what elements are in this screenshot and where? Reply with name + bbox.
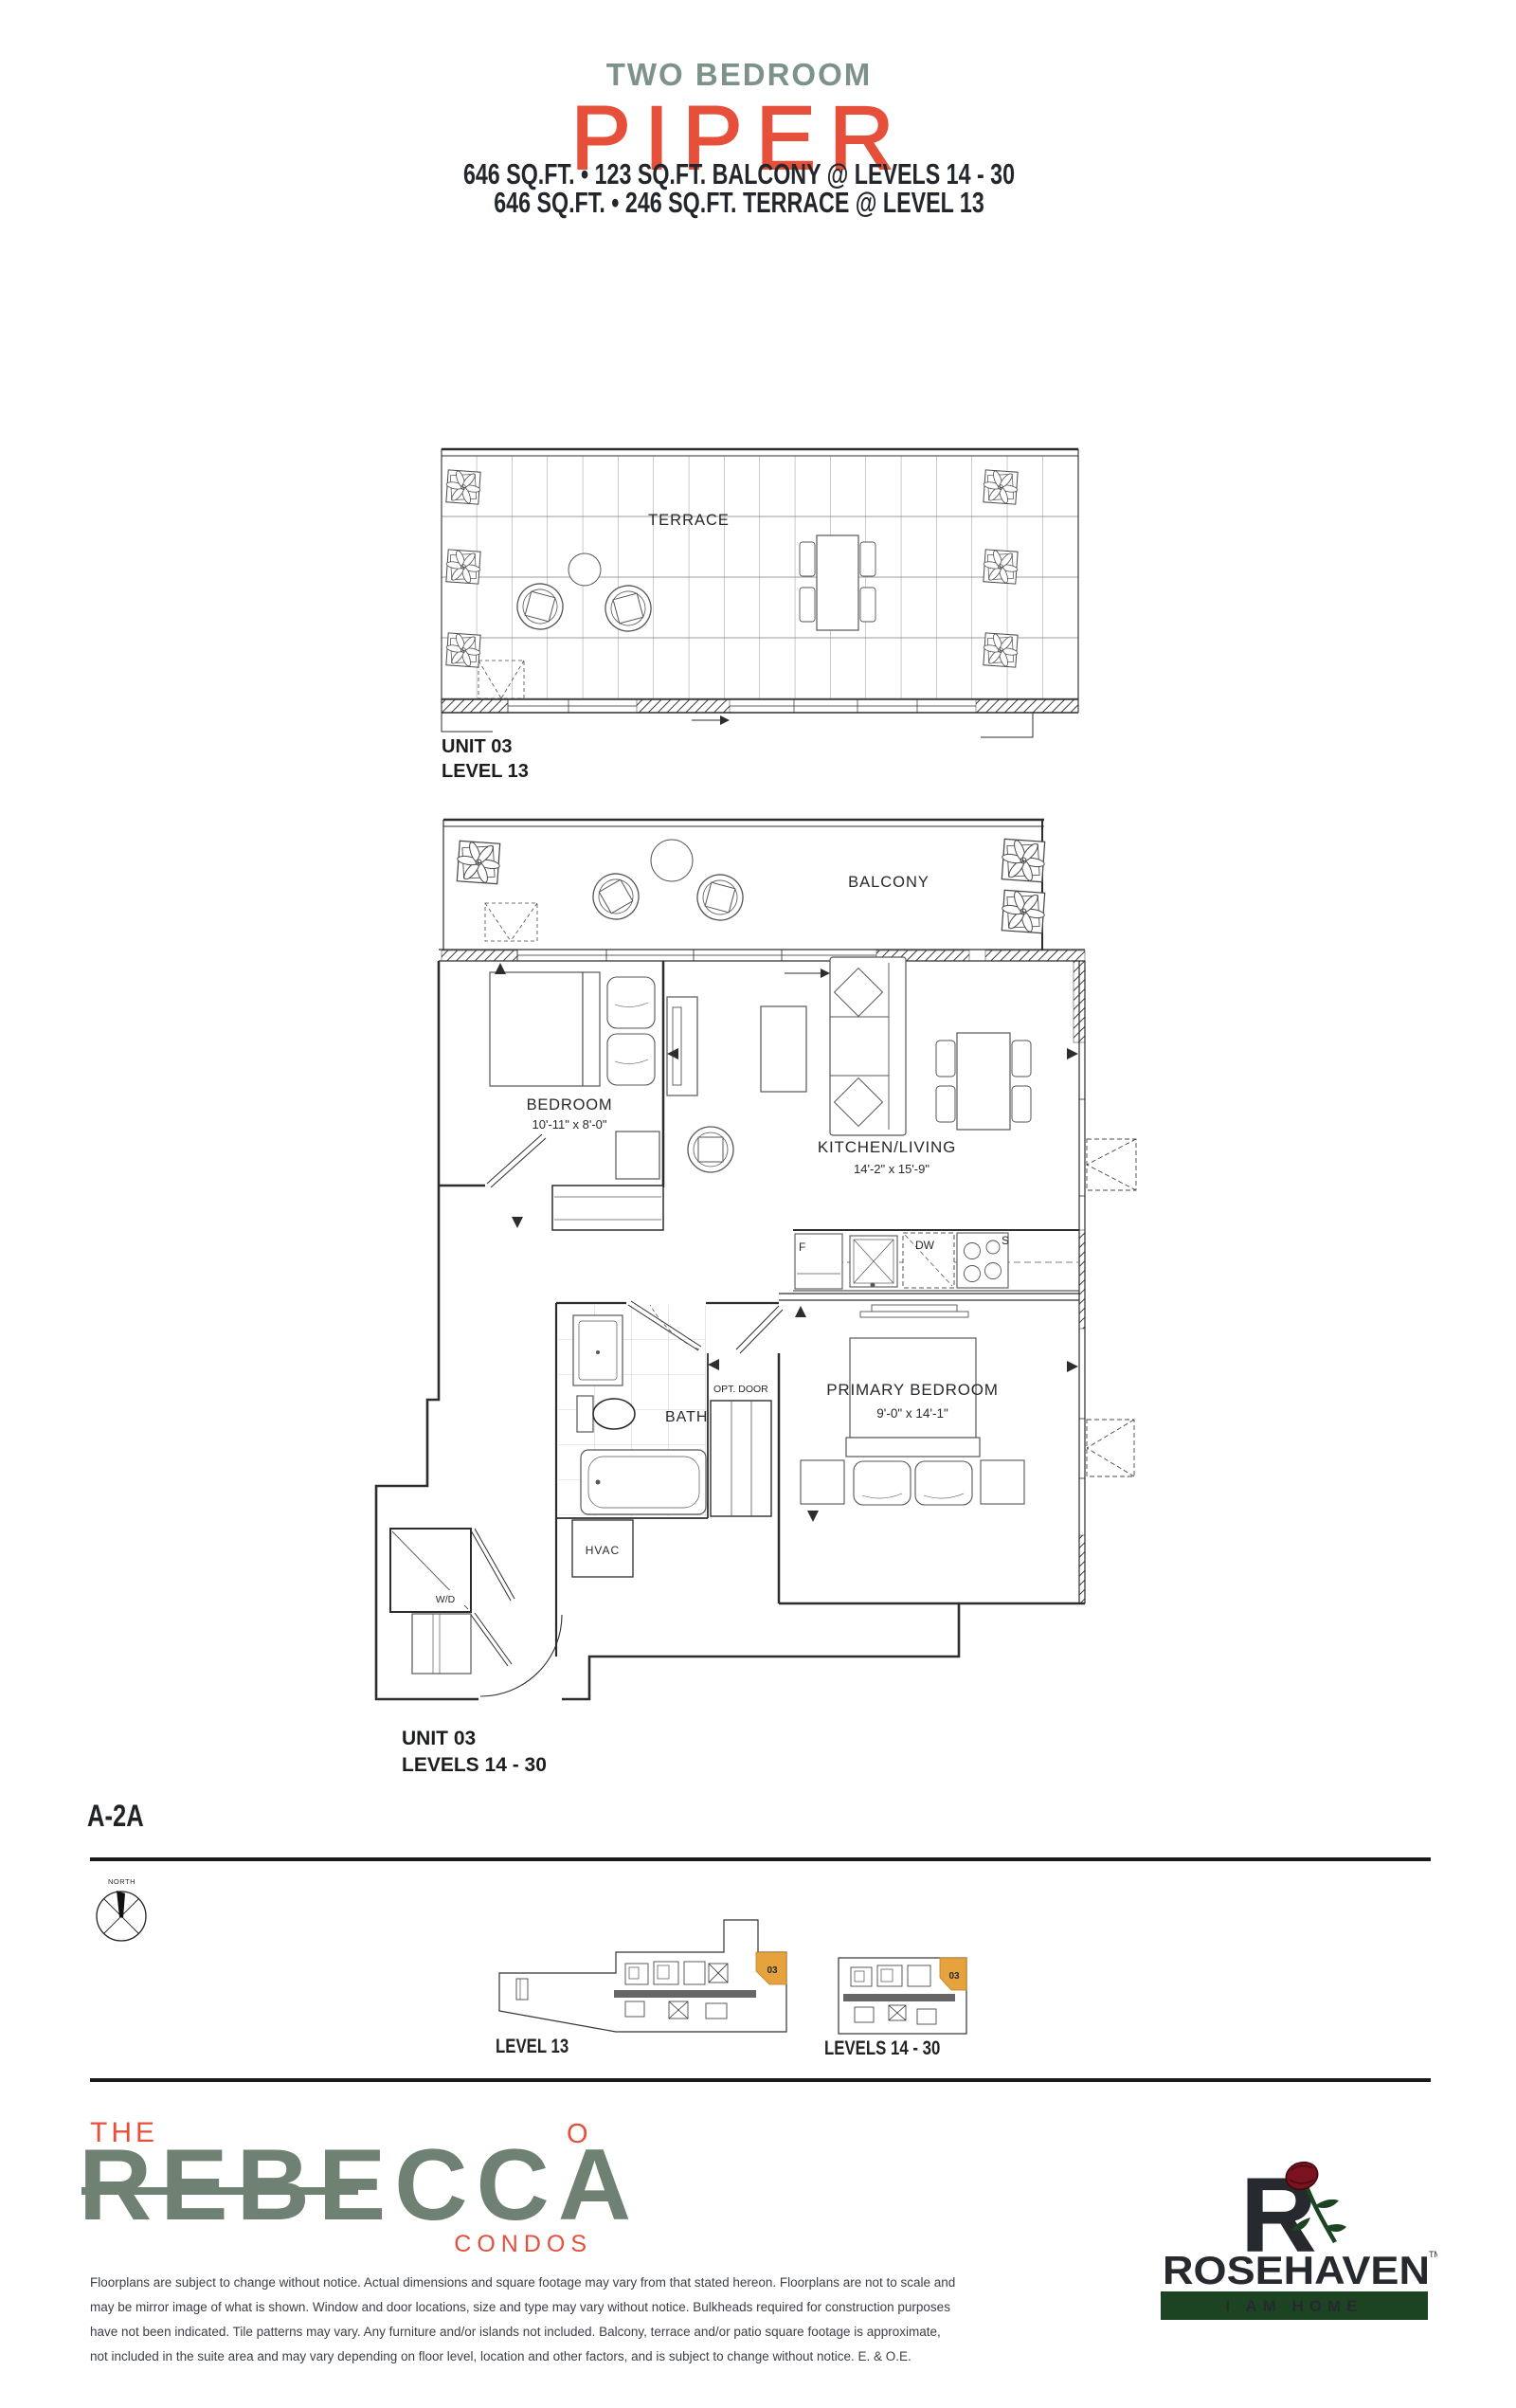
keyplan-levels14-30-label: LEVELS 14 - 30 (824, 2037, 940, 2060)
bath-label: BATH (665, 1409, 708, 1425)
keyplan-unit-number: 03 (767, 1965, 778, 1976)
keyplan-level13: 03 (499, 1920, 786, 2032)
opt-door-closet (711, 1401, 771, 1516)
primary-bedroom-dims: 9'-0" x 14'-1" (876, 1406, 948, 1421)
sofa-icon (830, 957, 906, 1135)
terrace-level-label: LEVEL 13 (442, 759, 529, 784)
entry-door-swing (480, 1615, 562, 1696)
rosehaven-wordmark: ROSEHAVEN (1163, 2248, 1430, 2292)
balcony-label: BALCONY (848, 874, 929, 891)
primary-bed-icon (846, 1338, 980, 1505)
washer-dryer-icon (390, 1529, 471, 1612)
dining-set-icon (936, 1033, 1031, 1130)
rebecca-condos: CONDOS (398, 2231, 592, 2258)
keyplan-unit-number: 03 (948, 1971, 960, 1982)
dishwasher-letters: DW (915, 1239, 935, 1252)
opt-door-label: OPT. DOOR (713, 1384, 768, 1395)
terrace-tile-floor (442, 456, 1078, 699)
nightstand-icon (981, 1460, 1024, 1504)
primary-bedroom-label: PRIMARY BEDROOM (826, 1381, 998, 1399)
plant-icon (984, 633, 1019, 667)
sink-icon (850, 1236, 897, 1288)
plant-icon (446, 470, 481, 504)
disclaimer-line: may be mirror image of what is shown. Wi… (90, 2295, 1047, 2320)
nightstand-icon (616, 1132, 659, 1179)
juliet-balcony (1087, 1139, 1136, 1476)
divider-rule-top (90, 1857, 1431, 1861)
terrace-unit-label: UNIT 03 (442, 734, 512, 759)
terrace-room-label: TERRACE (648, 512, 730, 529)
nightstand-icon (801, 1460, 844, 1504)
compass-north-label: NORTH (108, 1877, 135, 1886)
entry-closet-icon (412, 1614, 471, 1674)
compass-icon: NORTH (85, 1873, 157, 1948)
wall-hatch (442, 699, 508, 713)
round-table-icon (568, 553, 601, 586)
plant-icon (984, 470, 1019, 504)
plant-icon (984, 550, 1019, 584)
spec-line-terrace: 646 SQ.FT. • 246 SQ.FT. TERRACE @ LEVEL … (185, 186, 1293, 220)
wall-hatch (976, 699, 1078, 713)
disclaimer-line: Floorplans are subject to change without… (90, 2271, 1047, 2295)
rosehaven-logo: R ROSEHAVEN TM I AM HOME (1161, 2147, 1437, 2322)
rebecca-o-mark: O (567, 2119, 588, 2150)
wall-hatch (637, 699, 730, 713)
lounge-chair-icon (689, 866, 751, 929)
keyplan-level13-label: LEVEL 13 (496, 2036, 568, 2058)
bedroom-dims: 10'-11" x 8'-0" (532, 1117, 607, 1132)
suite-level-label: LEVELS 14 - 30 (402, 1753, 547, 1778)
plant-icon (457, 841, 500, 883)
keyplan-levels14-30: 03 (839, 1958, 966, 2034)
plant-icon (446, 550, 481, 584)
kitchen-living-label: KITCHEN/LIVING (818, 1138, 956, 1156)
bed-icon (490, 972, 655, 1086)
disclaimer-line: have not been indicated. Tile patterns m… (90, 2320, 1047, 2345)
floorplan-page: TWO BEDROOM PIPER 646 SQ.FT. • 123 SQ.FT… (0, 0, 1516, 2408)
vanity-sink-icon (573, 1315, 623, 1385)
rosehaven-trademark: TM (1429, 2250, 1437, 2259)
tv-console-icon (667, 997, 697, 1095)
lounge-chair-icon (588, 869, 644, 925)
plant-icon (1002, 890, 1045, 932)
dashed-opening (485, 903, 537, 941)
fridge-letter: F (799, 1240, 805, 1254)
rebecca-strike-bar (81, 2187, 358, 2195)
wd-label: W/D (436, 1594, 456, 1605)
disclaimer-text: Floorplans are subject to change without… (90, 2271, 1047, 2369)
coffee-table-icon (761, 1006, 806, 1092)
rosehaven-tagline: I AM HOME (1226, 2297, 1363, 2315)
toilet-icon (577, 1396, 635, 1432)
suite-unit-label: UNIT 03 (402, 1727, 476, 1751)
stove-icon (957, 1233, 1008, 1288)
kitchen-living-dims: 14'-2" x 15'-9" (854, 1162, 929, 1176)
hvac-label: HVAC (586, 1544, 620, 1557)
stove-letter: S (1002, 1234, 1009, 1247)
plant-icon (446, 633, 481, 667)
closet-icon (552, 1186, 663, 1230)
rebecca-wordmark: REBECCA (79, 2134, 640, 2236)
armchair-icon (678, 1117, 743, 1182)
suite-floorplan: BALCONY (360, 807, 1156, 1717)
bedroom-label: BEDROOM (527, 1096, 613, 1113)
range-hood-icon (860, 1305, 968, 1317)
disclaimer-line: not included in the suite area and may v… (90, 2345, 1047, 2369)
building-keyplans: 03 03 (469, 1914, 1009, 2042)
plant-icon (1002, 839, 1045, 881)
plan-code: A-2A (87, 1799, 144, 1834)
divider-rule-bottom (90, 2078, 1431, 2082)
bathtub-icon (581, 1450, 706, 1514)
round-table-icon (651, 840, 693, 881)
